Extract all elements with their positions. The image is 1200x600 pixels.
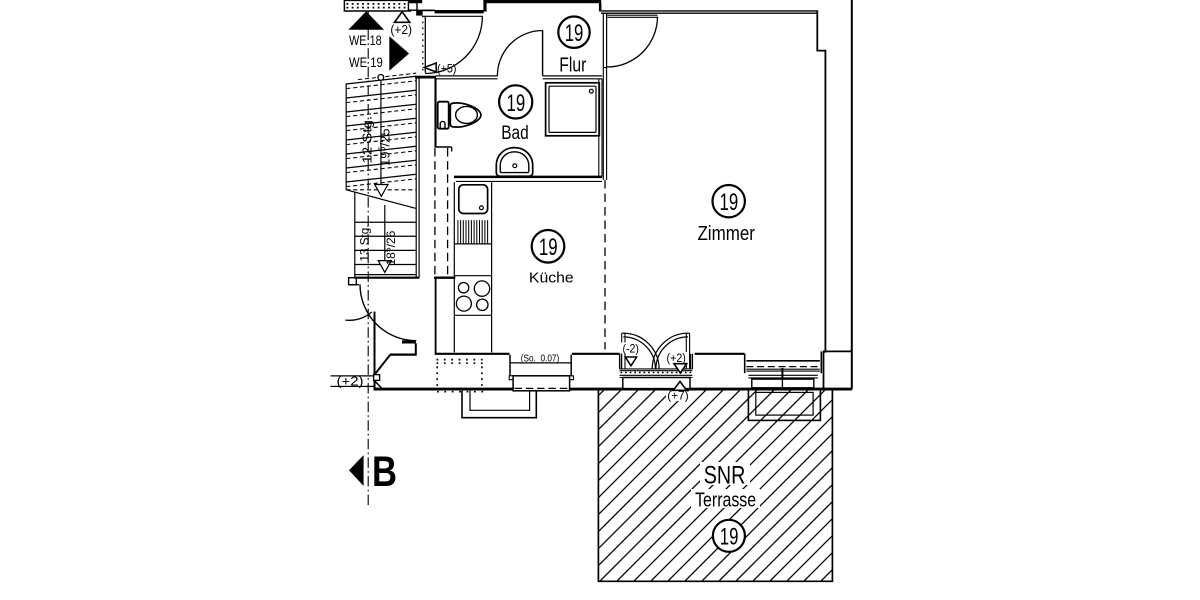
svg-text:Flur: Flur bbox=[559, 54, 586, 76]
svg-text:19: 19 bbox=[720, 524, 739, 551]
svg-text:Bad: Bad bbox=[501, 122, 529, 144]
svg-text:185/26: 185/26 bbox=[383, 230, 399, 265]
svg-text:19: 19 bbox=[720, 189, 739, 216]
svg-text:(+5): (+5) bbox=[437, 61, 457, 75]
svg-text:Terrasse: Terrasse bbox=[695, 489, 756, 511]
svg-text:19: 19 bbox=[565, 20, 584, 47]
svg-text:12 Stg.: 12 Stg. bbox=[360, 116, 375, 164]
svg-text:(+2): (+2) bbox=[390, 22, 412, 37]
svg-text:19: 19 bbox=[507, 90, 526, 117]
svg-text:WE 18: WE 18 bbox=[349, 33, 382, 48]
svg-text:SNR: SNR bbox=[704, 461, 746, 489]
svg-text:WE 19: WE 19 bbox=[349, 55, 383, 70]
svg-text:B: B bbox=[372, 449, 397, 496]
svg-text:Küche: Küche bbox=[529, 269, 574, 286]
svg-text:Zimmer: Zimmer bbox=[697, 222, 755, 245]
svg-text:(-2): (-2) bbox=[622, 342, 639, 356]
svg-text:13 Stg.: 13 Stg. bbox=[358, 225, 372, 262]
svg-text:(+2): (+2) bbox=[337, 374, 364, 389]
svg-text:19: 19 bbox=[539, 234, 558, 261]
svg-text:(+7): (+7) bbox=[667, 389, 688, 403]
svg-text:195/25: 195/25 bbox=[377, 128, 393, 166]
svg-text:(So. 0.07): (So. 0.07) bbox=[521, 353, 560, 364]
svg-text:(+2): (+2) bbox=[667, 351, 686, 365]
